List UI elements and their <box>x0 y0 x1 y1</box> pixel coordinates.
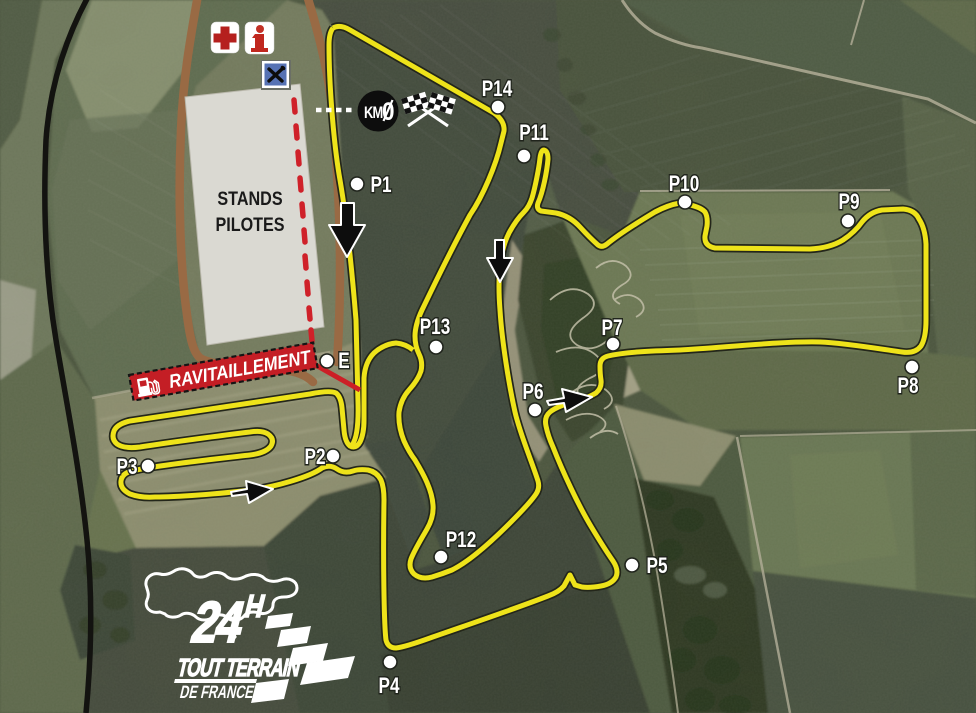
svg-text:P2: P2 <box>305 445 326 470</box>
svg-text:P7: P7 <box>602 316 623 341</box>
svg-text:TOUT TERRAIN: TOUT TERRAIN <box>175 653 303 681</box>
svg-text:P6: P6 <box>523 380 544 405</box>
svg-text:P5: P5 <box>647 554 668 579</box>
svg-text:E: E <box>338 349 349 374</box>
svg-text:KM: KM <box>364 103 383 122</box>
svg-text:P4: P4 <box>379 674 400 699</box>
svg-text:P9: P9 <box>839 190 860 215</box>
svg-text:P13: P13 <box>420 315 451 340</box>
svg-text:P11: P11 <box>519 121 549 146</box>
svg-text:DE FRANCE: DE FRANCE <box>178 683 256 702</box>
svg-text:P12: P12 <box>446 528 477 553</box>
svg-text:P10: P10 <box>669 172 700 197</box>
svg-text:P8: P8 <box>898 374 919 399</box>
svg-text:PILOTES: PILOTES <box>215 214 284 236</box>
svg-text:P14: P14 <box>482 77 513 102</box>
svg-text:P3: P3 <box>117 455 138 480</box>
svg-text:STANDS: STANDS <box>217 188 282 210</box>
svg-text:P1: P1 <box>371 173 392 198</box>
